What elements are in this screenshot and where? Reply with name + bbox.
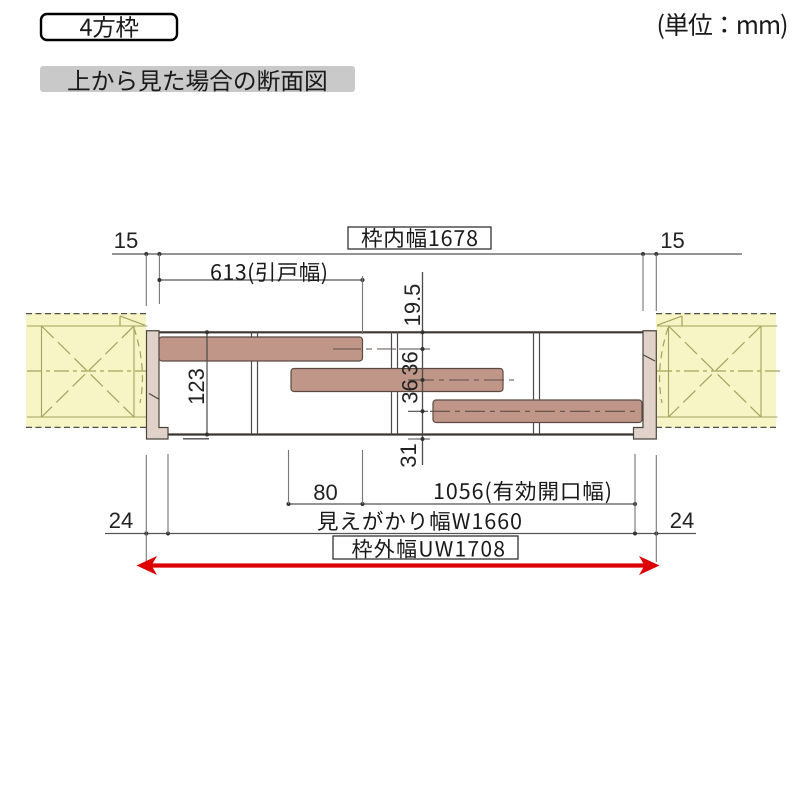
svg-text:15: 15 xyxy=(114,228,138,253)
svg-text:31: 31 xyxy=(396,443,421,467)
svg-text:80: 80 xyxy=(313,480,337,505)
svg-text:36: 36 xyxy=(398,379,423,403)
svg-text:24: 24 xyxy=(109,508,133,533)
svg-text:15: 15 xyxy=(660,228,684,253)
svg-text:123: 123 xyxy=(184,368,209,405)
svg-text:36: 36 xyxy=(398,351,423,375)
svg-text:19.5: 19.5 xyxy=(400,284,425,327)
svg-text:24: 24 xyxy=(670,508,694,533)
